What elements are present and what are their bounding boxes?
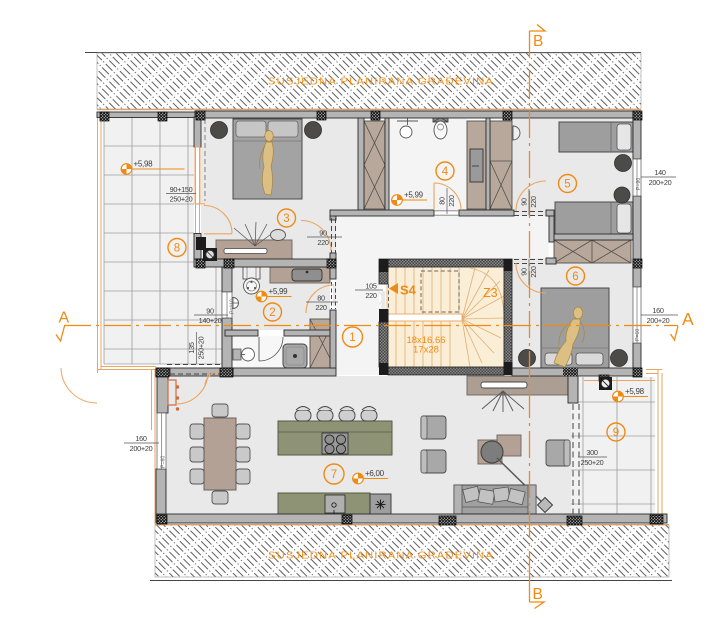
svg-text:A: A: [682, 309, 694, 329]
svg-text:2: 2: [269, 307, 275, 319]
svg-text:S4: S4: [400, 283, 417, 298]
svg-text:P=90: P=90: [636, 178, 642, 190]
svg-text:4: 4: [442, 166, 449, 178]
svg-text:300: 300: [586, 448, 598, 457]
svg-text:250+20: 250+20: [170, 195, 193, 204]
svg-text:160: 160: [135, 434, 147, 443]
svg-text:1: 1: [349, 332, 355, 344]
svg-text:80: 80: [438, 197, 447, 205]
svg-text:+5,99: +5,99: [404, 191, 424, 200]
svg-text:+5,98: +5,98: [625, 387, 645, 396]
svg-text:P=60: P=60: [635, 329, 641, 341]
svg-text:220: 220: [365, 291, 377, 300]
svg-text:+5,99: +5,99: [269, 287, 289, 296]
svg-text:220: 220: [529, 266, 538, 278]
svg-text:90+150: 90+150: [170, 185, 193, 194]
svg-text:A: A: [59, 310, 70, 327]
svg-text:P=110: P=110: [230, 299, 236, 314]
svg-text:135: 135: [187, 342, 196, 354]
svg-text:90: 90: [520, 198, 529, 206]
svg-text:SUSJEDNA PLANIRANA GRAĐEVINA: SUSJEDNA PLANIRANA GRAĐEVINA: [268, 77, 494, 88]
svg-text:250+20: 250+20: [197, 336, 206, 359]
svg-text:9: 9: [613, 427, 619, 439]
svg-text:250+20: 250+20: [581, 458, 604, 467]
svg-text:90: 90: [520, 268, 529, 276]
svg-text:6: 6: [572, 271, 578, 283]
svg-text:+5,98: +5,98: [134, 160, 154, 169]
svg-text:B: B: [533, 33, 543, 50]
svg-text:220: 220: [529, 196, 538, 208]
svg-text:160: 160: [652, 306, 664, 315]
svg-text:220: 220: [315, 303, 327, 312]
svg-text:105: 105: [365, 282, 377, 291]
svg-text:200+20: 200+20: [649, 178, 672, 187]
svg-text:140: 140: [654, 168, 666, 177]
svg-text:200+20: 200+20: [130, 444, 153, 453]
svg-text:SUSJEDNA PLANIRANA GRAĐEVINA: SUSJEDNA PLANIRANA GRAĐEVINA: [268, 551, 494, 562]
svg-text:Z3: Z3: [483, 286, 498, 300]
svg-text:80: 80: [317, 294, 325, 303]
svg-text:220: 220: [317, 238, 329, 247]
svg-text:90: 90: [206, 307, 214, 316]
svg-text:8: 8: [174, 243, 180, 255]
svg-text:5: 5: [564, 179, 570, 191]
svg-text:17x28: 17x28: [413, 345, 439, 356]
svg-text:140+20: 140+20: [199, 316, 222, 325]
svg-text:90: 90: [319, 229, 327, 238]
svg-text:7: 7: [331, 469, 337, 481]
svg-text:200+20: 200+20: [647, 316, 670, 325]
svg-text:3: 3: [283, 213, 289, 225]
svg-text:220: 220: [447, 195, 456, 207]
svg-text:+6,00: +6,00: [365, 469, 385, 478]
svg-text:P=60: P=60: [161, 456, 167, 468]
svg-text:B: B: [533, 586, 543, 603]
